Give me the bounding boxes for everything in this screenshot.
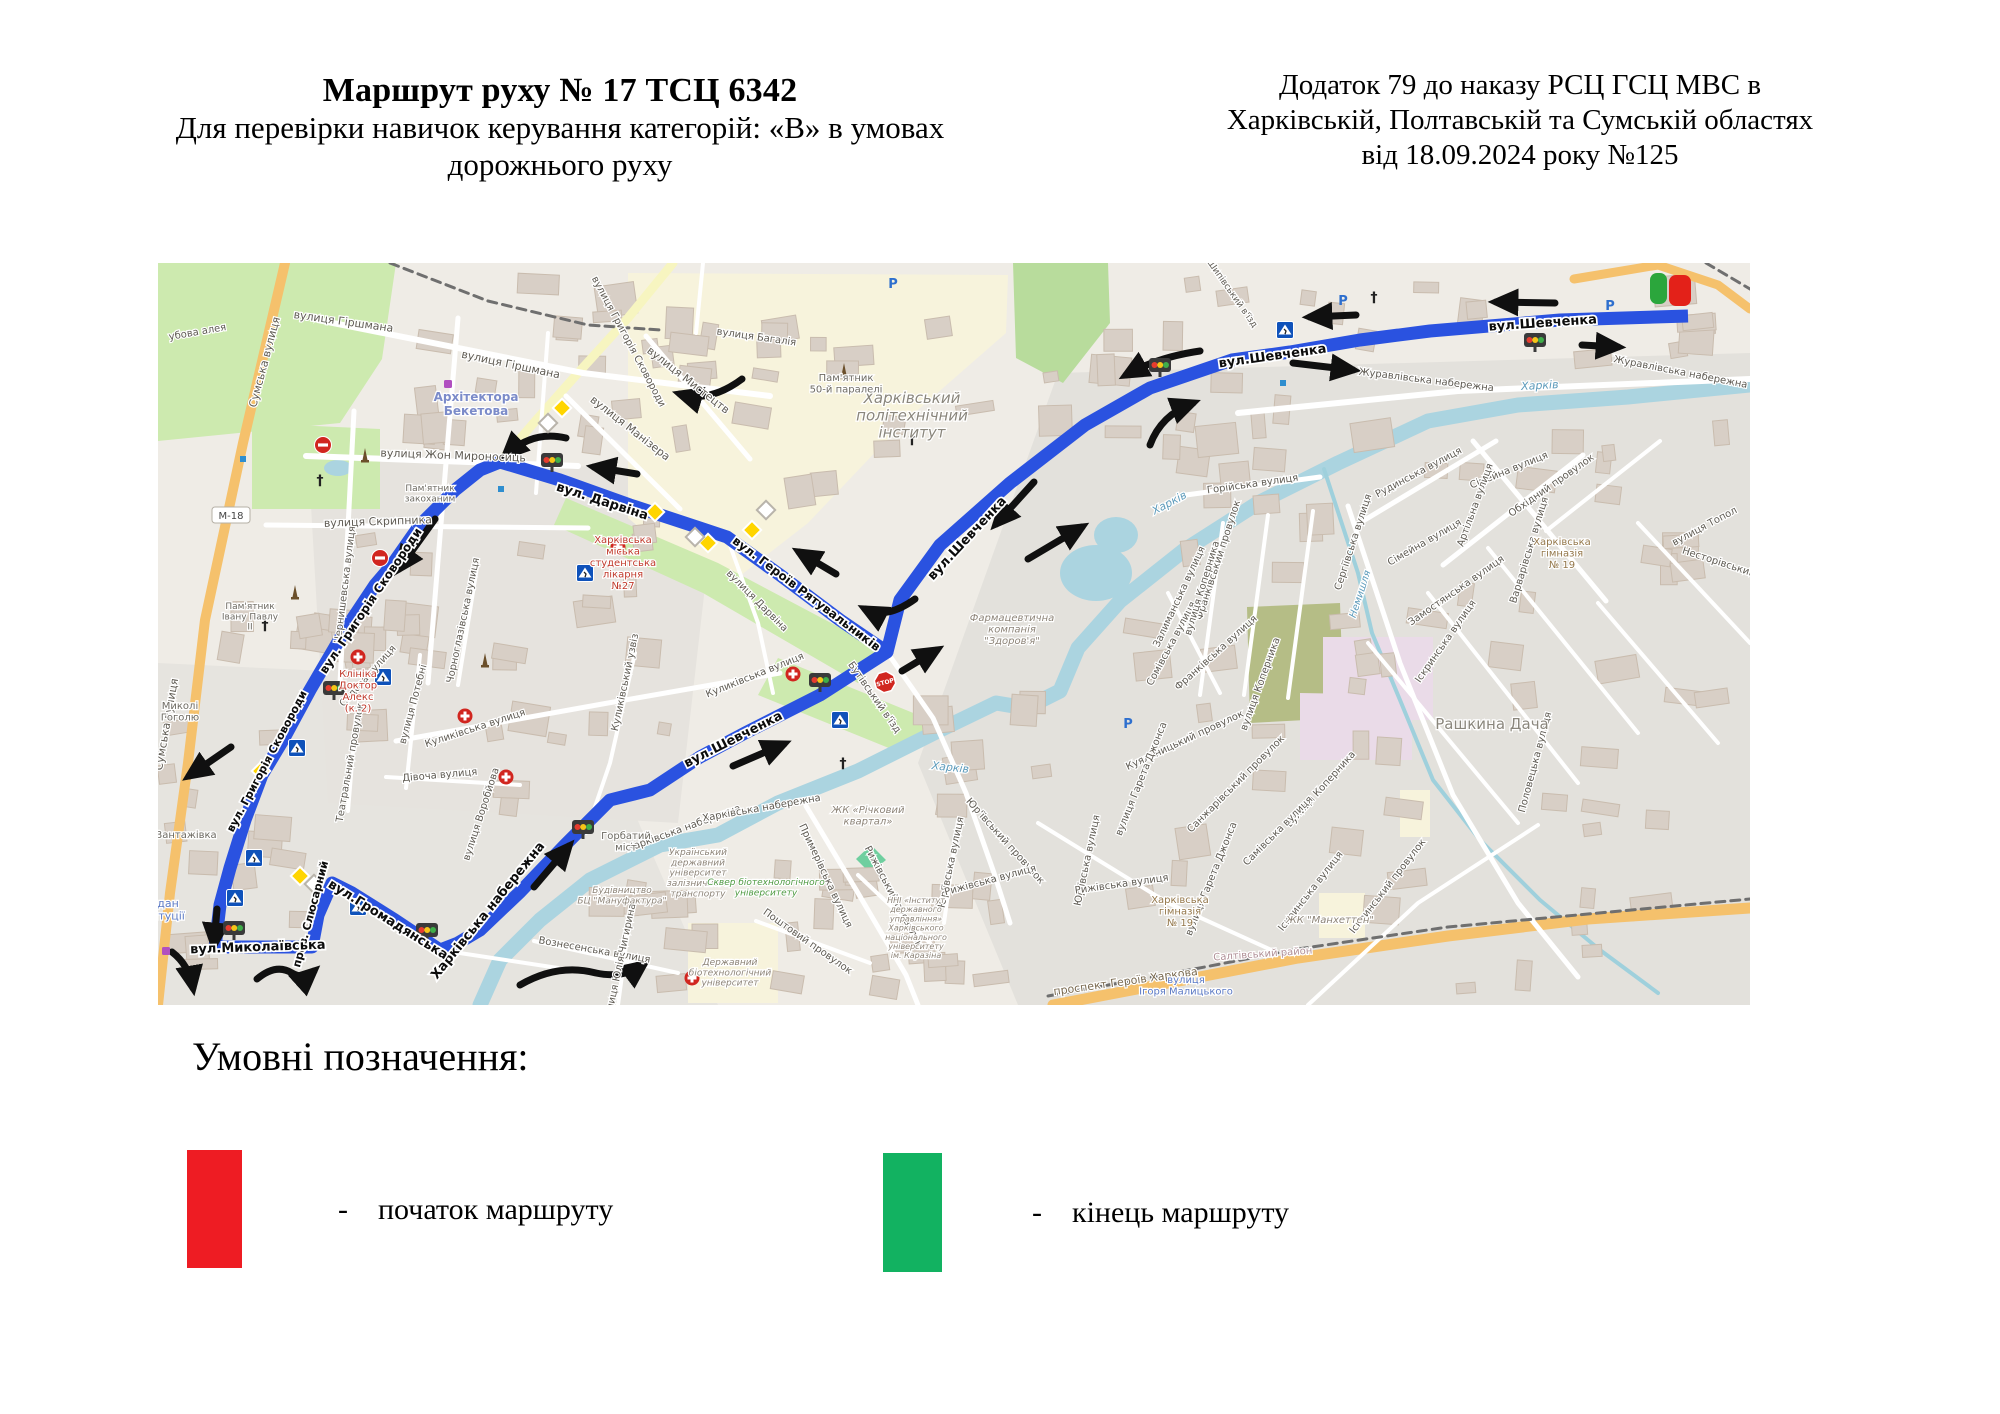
- building: [189, 851, 219, 875]
- route-start-marker: [1669, 275, 1691, 306]
- building: [814, 899, 834, 930]
- pond: [1094, 517, 1138, 553]
- street-label: Рашкина Дача: [1435, 715, 1549, 733]
- building: [1097, 354, 1116, 386]
- building: [669, 332, 709, 356]
- m18-icon: М-18: [212, 507, 250, 523]
- building: [1582, 944, 1602, 957]
- building: [1414, 282, 1439, 293]
- document-page: Маршрут руху № 17 ТСЦ 6342 Для перевірки…: [0, 0, 2000, 1414]
- building: [1552, 430, 1584, 454]
- svg-text:P: P: [1605, 299, 1615, 314]
- building: [217, 631, 244, 663]
- building: [1105, 426, 1141, 438]
- legend-end-dash: -: [1032, 1196, 1042, 1230]
- svg-text:†: †: [1371, 290, 1378, 306]
- shop-icon: [444, 380, 452, 388]
- building: [1580, 747, 1618, 769]
- page-subtitle-line2: дорожнього руху: [170, 146, 950, 183]
- building: [254, 815, 292, 842]
- building: [1043, 371, 1059, 383]
- svg-text:P: P: [888, 277, 898, 292]
- building: [582, 595, 611, 609]
- street-label: АрхітектораБекетова: [434, 390, 519, 418]
- building: [1171, 860, 1187, 886]
- building: [811, 337, 827, 351]
- building: [1645, 810, 1669, 829]
- direction-arrow: [1496, 302, 1555, 303]
- building: [1184, 276, 1200, 292]
- building: [1602, 444, 1616, 461]
- cross-icon: [227, 890, 244, 907]
- page-subtitle: Для перевірки навичок керування категорі…: [170, 109, 950, 183]
- building: [296, 613, 322, 639]
- building: [871, 954, 890, 972]
- building: [517, 273, 559, 295]
- building: [1253, 494, 1280, 514]
- building: [1211, 373, 1243, 393]
- direction-arrow: [1582, 345, 1618, 347]
- street-label: Харків: [1520, 378, 1559, 393]
- building: [664, 928, 707, 953]
- building: [1515, 960, 1532, 991]
- med-icon: [786, 667, 801, 682]
- building: [1580, 888, 1596, 909]
- parking-icon: P: [1123, 717, 1133, 732]
- cross-icon: [832, 712, 849, 729]
- building: [589, 712, 608, 736]
- svg-text:P: P: [1338, 294, 1348, 309]
- building: [657, 722, 671, 736]
- parking-icon: P: [1338, 294, 1348, 309]
- street-label: Пам'ятникзакоханим: [405, 484, 456, 504]
- building: [1163, 435, 1181, 460]
- shop-icon: [162, 947, 170, 955]
- annex-line2: Харківській, Полтавській та Сумській обл…: [1165, 103, 1875, 138]
- building: [384, 600, 406, 632]
- church-icon: †: [1371, 290, 1378, 306]
- building: [1348, 677, 1366, 694]
- route-end-marker: [1650, 273, 1667, 304]
- building: [1253, 447, 1287, 471]
- bus-icon: [240, 456, 246, 462]
- svg-text:†: †: [317, 473, 324, 489]
- noentry-icon: [315, 437, 332, 454]
- building: [1163, 321, 1183, 350]
- building: [656, 974, 687, 993]
- street-label: Вантажівка: [158, 829, 217, 841]
- building: [937, 794, 967, 817]
- building: [410, 552, 432, 576]
- legend-start-dash: -: [338, 1193, 348, 1227]
- building: [869, 975, 899, 999]
- street-label: ННІ «Інститутдержавногоуправління»Харків…: [885, 896, 947, 960]
- pond: [1060, 545, 1132, 601]
- parking-icon: P: [1605, 299, 1615, 314]
- legend-start-item: - початок маршруту: [338, 1193, 613, 1227]
- church-icon: †: [317, 473, 324, 489]
- building: [1196, 703, 1212, 722]
- annex-line3: від 18.09.2024 року №125: [1165, 138, 1875, 173]
- svg-text:†: †: [840, 756, 847, 772]
- building: [1350, 418, 1395, 453]
- svg-text:P: P: [1123, 717, 1133, 732]
- legend-end-swatch: [883, 1153, 942, 1272]
- page-subtitle-line1: Для перевірки навичок керування категорі…: [170, 109, 950, 146]
- building: [1583, 822, 1602, 836]
- building: [784, 474, 816, 509]
- building: [774, 860, 791, 879]
- building: [924, 316, 952, 339]
- building: [1104, 329, 1133, 351]
- legend-start-swatch: [187, 1150, 242, 1268]
- building: [355, 533, 376, 548]
- med-icon: [458, 709, 473, 724]
- route-map: STOP†††††PPPPМ-18вулиця Гіршманавулиця Г…: [158, 263, 1750, 1005]
- building: [1176, 411, 1196, 432]
- building: [1713, 420, 1730, 446]
- church-icon: †: [840, 756, 847, 772]
- page-title: Маршрут руху № 17 ТСЦ 6342: [250, 72, 870, 110]
- cross-icon: [1277, 322, 1294, 339]
- building: [1031, 764, 1051, 779]
- bus-icon: [1280, 380, 1286, 386]
- annex-line1: Додаток 79 до наказу РСЦ ГСЦ МВС в: [1165, 68, 1875, 103]
- building: [1466, 300, 1487, 319]
- street-label: ЖК "Манхеттен": [1285, 915, 1374, 926]
- legend-heading: Умовні позначення:: [192, 1033, 528, 1080]
- building: [874, 440, 900, 457]
- building: [1488, 641, 1524, 670]
- building: [1010, 694, 1038, 726]
- med-icon: [351, 650, 366, 665]
- annex-note: Додаток 79 до наказу РСЦ ГСЦ МВС в Харкі…: [1165, 68, 1875, 173]
- route-map-svg: STOP†††††PPPPМ-18вулиця Гіршманавулиця Г…: [158, 263, 1750, 1005]
- direction-arrow: [214, 909, 217, 945]
- building: [1251, 411, 1266, 439]
- legend-end-label: кінець маршруту: [1072, 1196, 1289, 1230]
- legend-start-label: початок маршруту: [378, 1193, 613, 1227]
- svg-text:М-18: М-18: [219, 511, 244, 522]
- building: [1376, 737, 1402, 766]
- cross-icon: [246, 850, 263, 867]
- map-area: [252, 423, 380, 509]
- building: [1456, 982, 1476, 994]
- street-label: Українськийдержавнийуніверситетзалізничн…: [667, 848, 730, 899]
- building: [1300, 290, 1316, 306]
- building: [1574, 348, 1612, 368]
- street-label: МиколіГоголю: [161, 700, 199, 724]
- legend-end-item: - кінець маршруту: [1032, 1196, 1289, 1230]
- parking-icon: P: [888, 277, 898, 292]
- building: [1272, 562, 1304, 582]
- building: [547, 732, 566, 745]
- street-label: Пам'ятник50-й паралелі: [810, 373, 883, 396]
- building: [1541, 793, 1567, 811]
- bus-icon: [498, 486, 504, 492]
- cross-icon: [289, 740, 306, 757]
- direction-arrow: [1310, 315, 1356, 317]
- pond: [324, 460, 352, 476]
- building: [1252, 770, 1286, 792]
- building: [1195, 422, 1239, 457]
- building: [517, 542, 545, 559]
